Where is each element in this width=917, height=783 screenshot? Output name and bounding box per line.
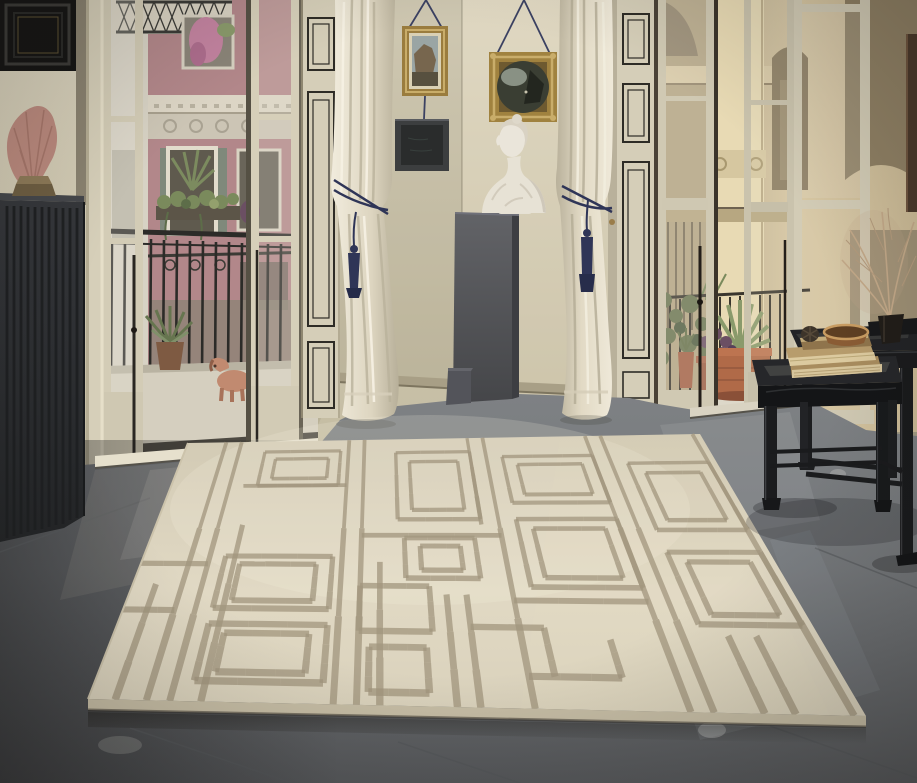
interior-photo: Sunlit historic apartment interior: tall…: [0, 0, 917, 783]
vignette: [0, 0, 917, 783]
